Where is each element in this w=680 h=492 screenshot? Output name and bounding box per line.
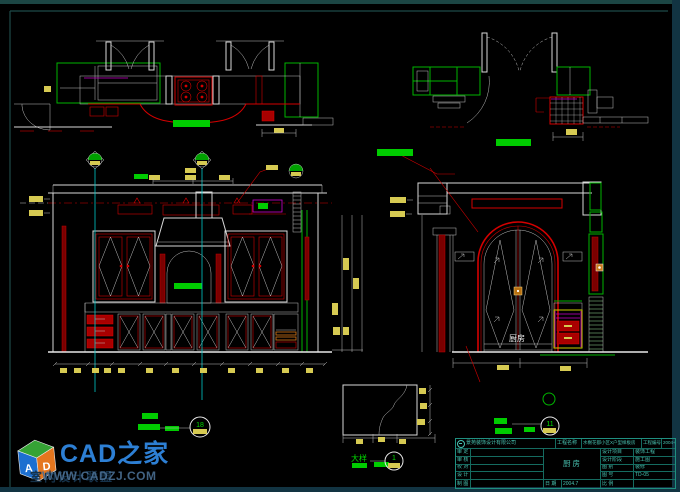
sign-row-value	[471, 457, 544, 465]
project-name: 水榭花都小区X户型样板房	[582, 439, 642, 449]
info-row-value: 装饰工程	[634, 449, 675, 457]
upper-cabinet-right	[225, 231, 287, 302]
info-row-label: 比 例	[601, 480, 634, 488]
cad-viewport: 18	[0, 0, 680, 492]
leader-tag	[455, 252, 582, 261]
door-knob-icon	[514, 287, 522, 295]
info-row-label: 设计项目	[601, 449, 634, 457]
date-label: 日 期	[544, 480, 562, 488]
cooktop-burners-icon	[175, 77, 212, 105]
sign-row-value	[471, 465, 544, 473]
elevation-main: 18	[20, 151, 332, 437]
sign-row-value	[471, 472, 544, 480]
sign-row-label: 审 定	[456, 449, 471, 457]
upper-cabinet-left	[93, 231, 155, 302]
elevation-title-marker: 11	[494, 393, 559, 435]
dimension-column-middle	[332, 215, 363, 352]
company-logo-icon	[457, 440, 465, 448]
sign-row-label: 审 核	[456, 457, 471, 465]
company-name: 景苑装饰设计有限公司	[466, 441, 516, 446]
plan-tile-area	[536, 97, 583, 124]
range-hood	[156, 192, 230, 246]
drawing-name: 厨房	[544, 449, 601, 480]
view-marker-icon	[86, 151, 104, 169]
title-block: 景苑装饰设计有限公司 工程名称 水榭花都小区X户型样板房 工程编号 2004-0…	[455, 438, 676, 489]
dimension-chain-bottom	[53, 362, 327, 373]
info-row-value: 装修	[634, 465, 675, 473]
detail-callout-icon	[289, 164, 303, 178]
sign-row-value	[471, 480, 544, 488]
sign-row-label: 制 图	[456, 480, 471, 488]
info-row-value: 施工图	[634, 457, 675, 465]
hatch-column	[589, 297, 603, 352]
info-row-label: 图 号	[601, 472, 634, 480]
sign-row-value	[471, 449, 544, 457]
ceiling-lamp-box	[249, 200, 286, 214]
detail-bubble-number: 1	[392, 455, 396, 462]
hatch-column	[293, 192, 301, 232]
info-row-value: TD-05	[634, 472, 675, 480]
door-room-label: 厨房	[509, 333, 525, 343]
marker-number-right: 11	[546, 421, 553, 428]
info-row-label: 图 别	[601, 465, 634, 473]
plan-top-right	[388, 33, 648, 174]
plan-top-left	[14, 41, 333, 137]
info-row-value	[634, 480, 675, 488]
project-number: 2004-05	[662, 439, 675, 449]
project-number-label: 工程编号	[642, 439, 662, 449]
date-value: 2004.7	[562, 480, 601, 488]
cad-drawing-canvas: 18	[0, 0, 680, 492]
info-row-label: 设计阶段	[601, 457, 634, 465]
brand-logo-text: CAD之家	[60, 434, 169, 470]
detail-title-marker: 大样 1	[351, 452, 403, 470]
arched-door: 厨房	[478, 222, 558, 352]
wall-lamp-icon	[596, 264, 603, 271]
elevation-right: 厨房	[377, 149, 648, 435]
view-marker-icon	[193, 151, 211, 169]
detail-title-label: 大样	[351, 453, 367, 463]
project-label: 工程名称	[556, 439, 582, 449]
sign-row-label: 校 对	[456, 465, 471, 473]
marker-number-left: 18	[196, 422, 204, 429]
base-cabinets	[85, 303, 298, 352]
site-url-text: WWW.CADZJ.COM	[42, 469, 156, 483]
detail-section: 大样 1	[343, 385, 435, 470]
sign-row-label: 设 计	[456, 472, 471, 480]
sheet-frame	[0, 0, 680, 492]
company-cell: 景苑装饰设计有限公司	[456, 439, 556, 449]
